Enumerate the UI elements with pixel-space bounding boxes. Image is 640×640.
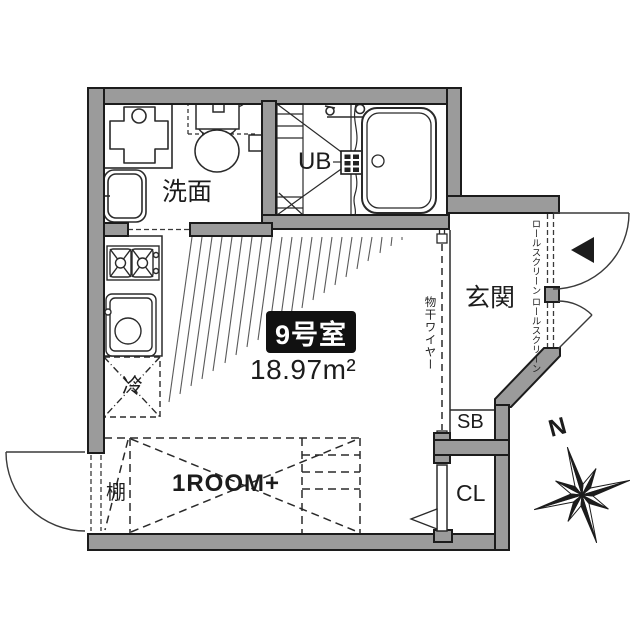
wall-diagonal [495,348,560,407]
closet-door [411,465,447,531]
entrance-marker-triangle [571,237,594,263]
area-label: 18.97m² [250,356,356,384]
shoe-box-label: SB [457,412,484,432]
wall-washroom-stub [104,223,128,236]
roll-screen-lower-label: ロールスクリーン [530,297,540,373]
entrance-label: 玄関 [465,286,515,311]
wall-cl-door-cap [434,530,452,542]
toilet-remote [249,135,262,151]
kitchen-sink [105,294,156,356]
wall-ub-left [262,101,276,216]
wall-ub-right [447,88,461,198]
laundry-wire-label: 物干ワイヤー [423,296,435,371]
wall-ub-bottom [262,215,449,229]
wall-cl-top [434,440,509,455]
washing-machine-pan [104,102,172,168]
area-value: 18.97 [250,354,323,385]
wall-right [495,405,509,550]
area-unit: m² [323,354,357,385]
room-number-text: 9号室 [275,313,347,352]
wall-washroom-bottom [190,223,272,236]
bath-control-panel [341,151,362,174]
balcony-door [6,452,85,531]
refrigerator-label: 冷 [122,376,143,397]
wall-left [88,88,104,453]
wall-entrance-top [447,196,559,213]
entrance-window-door [558,301,592,349]
bathtub [362,108,436,213]
closet-label: CL [456,482,485,505]
stove [107,246,159,280]
room-number-badge: 9号室 [266,311,356,353]
entrance-step-line [450,230,495,432]
floor-plan: 洗面 UB 玄関 SB CL 1ROOM+ 冷 棚 9号室 18.97m² 物干… [0,0,640,640]
layout-type-label: 1ROOM+ [172,472,280,496]
roll-screen-upper-label: ロールスクリーン [530,219,540,295]
shelf-label: 棚 [106,483,126,503]
washroom-label: 洗面 [162,180,212,205]
compass-rose [520,433,640,558]
laundry-wire [437,230,447,440]
toilet [188,99,262,172]
unit-bath-label: UB [298,150,331,174]
